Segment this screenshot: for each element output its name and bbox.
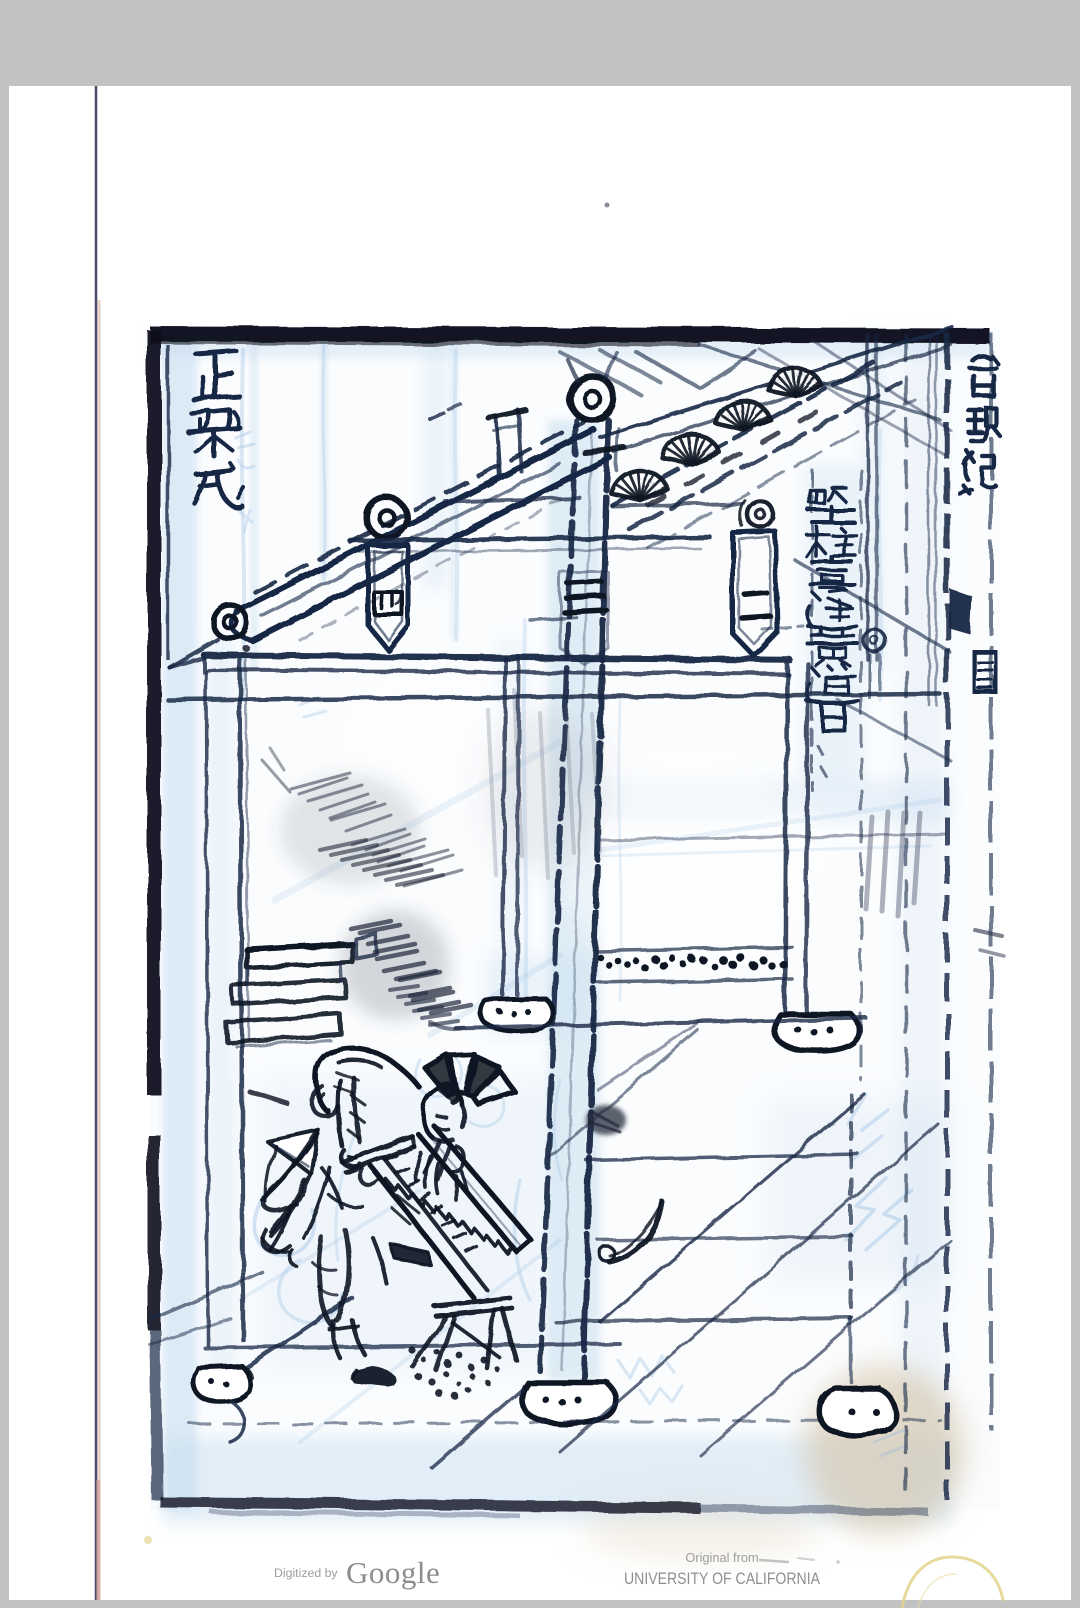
svg-text:Google: Google: [346, 1555, 440, 1590]
svg-text:Original from: Original from: [685, 1550, 758, 1565]
svg-text:Digitized by: Digitized by: [274, 1566, 338, 1580]
svg-text:UNIVERSITY OF CALIFORNIA: UNIVERSITY OF CALIFORNIA: [624, 1570, 820, 1588]
